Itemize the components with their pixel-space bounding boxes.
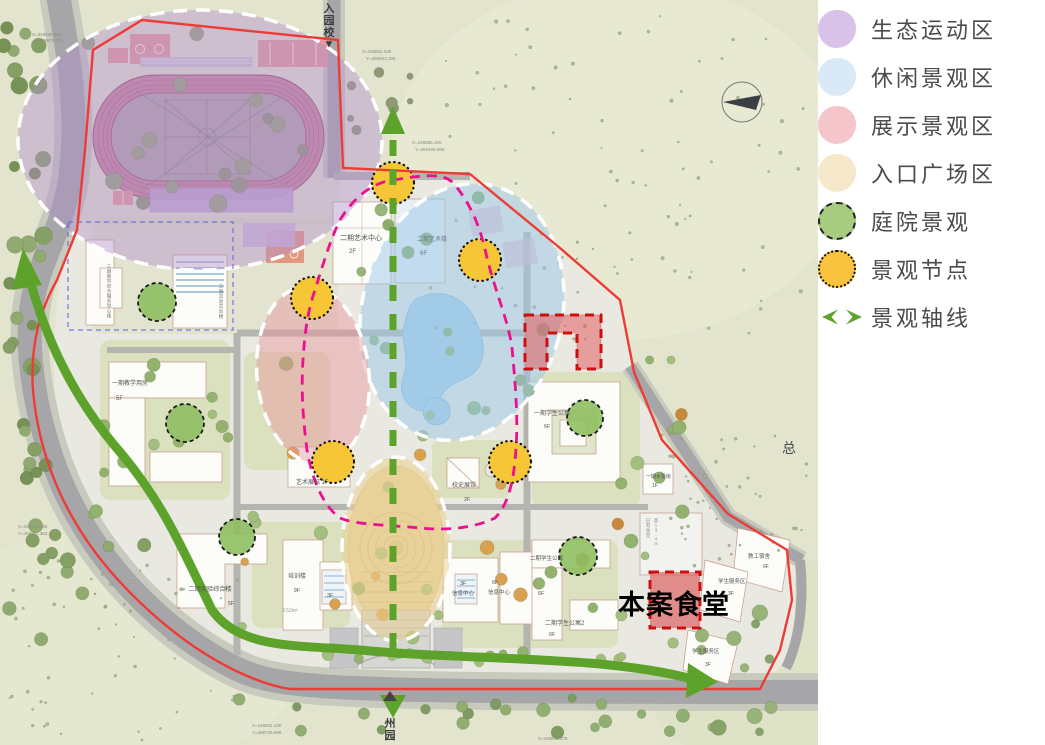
page: 入园校▼州园二期艺术中心2F二期艺术楼6F一期教学用房5F三期教学综合服务中心楼… (0, 0, 1045, 745)
tree (9, 161, 20, 172)
tree (167, 578, 170, 581)
tree (514, 588, 528, 602)
tree (684, 218, 686, 220)
tree (146, 564, 149, 567)
tree (797, 167, 800, 170)
tree (711, 720, 727, 736)
tree (7, 63, 23, 79)
tree (32, 708, 34, 710)
tree (137, 538, 151, 552)
legend-swatch-4 (818, 154, 856, 192)
tree (216, 420, 228, 432)
tree (667, 215, 670, 218)
tree (357, 267, 366, 276)
tree (748, 332, 750, 334)
tree (601, 147, 603, 149)
tree (31, 584, 33, 586)
map-label: Y=468463.186 (366, 56, 396, 61)
tree (734, 437, 737, 440)
tree (592, 248, 594, 250)
tree (34, 250, 46, 262)
map-label: 培训楼 (288, 572, 306, 580)
tree (22, 607, 24, 609)
map-label: X=348871.180 (18, 524, 48, 529)
tree (690, 498, 692, 500)
legend-label: 景观轴线 (871, 301, 971, 333)
tree (27, 320, 37, 330)
map-label: 已有食堂 (646, 518, 651, 538)
tree (588, 603, 598, 613)
tree (295, 725, 306, 736)
map-label: 3.52m² (282, 608, 298, 614)
tree (314, 526, 327, 539)
tree (233, 695, 235, 697)
tree (148, 439, 159, 450)
tree (703, 475, 706, 478)
tree (755, 728, 763, 736)
tree (668, 638, 679, 649)
tree (1, 22, 14, 35)
tree (615, 478, 627, 490)
map-label: 信息中心 (452, 589, 475, 597)
tree (537, 703, 551, 717)
tree (407, 73, 413, 79)
legend-item-4: 入口广场区 (818, 154, 1043, 192)
tree (493, 88, 495, 90)
tree (687, 525, 690, 528)
tree (758, 144, 760, 146)
tree (90, 578, 92, 580)
tree (14, 617, 17, 620)
tree (37, 553, 49, 565)
tree (629, 232, 632, 235)
tree (747, 477, 750, 480)
tree (515, 182, 517, 184)
tree (90, 505, 103, 518)
tree (386, 97, 398, 109)
tree (40, 700, 43, 703)
tree (676, 709, 689, 722)
tree (207, 392, 218, 403)
tree (220, 597, 222, 599)
map-label: 三期教学综合服务中心楼 (107, 264, 112, 320)
tree (632, 181, 635, 184)
tree (609, 170, 612, 173)
tree (223, 433, 233, 443)
tree (673, 420, 687, 434)
map-label: 2F (464, 497, 471, 503)
tree (545, 566, 557, 578)
legend-label: 展示景观区 (871, 109, 996, 141)
tree (91, 693, 93, 695)
tree (99, 567, 101, 569)
tree (736, 96, 739, 99)
map-label: 3F (327, 593, 334, 599)
tree (63, 606, 65, 608)
tree (779, 151, 782, 154)
tree (590, 723, 599, 732)
tree (805, 475, 807, 477)
tree (726, 485, 728, 487)
tree (46, 723, 49, 726)
map-label: 6F (420, 251, 427, 257)
tree (507, 20, 510, 23)
tree (641, 552, 649, 560)
tree (514, 150, 516, 152)
tree (682, 168, 684, 170)
tree (751, 620, 760, 629)
tree (103, 541, 114, 552)
legend-swatch-5 (818, 202, 856, 240)
tree (449, 135, 452, 138)
map-label: 6F (538, 591, 545, 597)
map-label: 总 (782, 440, 796, 456)
tree (618, 31, 621, 34)
tree (138, 731, 140, 733)
tree (631, 258, 633, 260)
map-label: 信息中心 (488, 588, 511, 596)
map-label: 一期教学用房 (112, 379, 148, 387)
tree (768, 170, 770, 172)
tree (801, 529, 803, 531)
tree (799, 555, 801, 557)
tree (674, 270, 677, 273)
tree (762, 103, 764, 105)
tree (616, 272, 618, 274)
map-label: 艺术展馆 1F (296, 478, 329, 486)
tree (147, 615, 149, 617)
tree (39, 571, 42, 574)
tree (720, 439, 722, 441)
tree (614, 266, 616, 268)
tree (515, 54, 517, 56)
tree (697, 176, 700, 179)
tree (707, 327, 710, 330)
map-label: 6F (763, 564, 769, 570)
tree (760, 530, 762, 532)
tree (721, 57, 723, 59)
axis-arrows-icon (818, 298, 867, 336)
tree (698, 60, 700, 62)
legend-swatch-2 (818, 58, 856, 96)
legend-swatch-6 (818, 250, 856, 288)
tree (407, 98, 413, 104)
map-label: 二期实验综合楼 (188, 585, 231, 593)
tree (141, 739, 143, 741)
tree (770, 533, 773, 536)
map-label: 二期艺术中心 (340, 233, 382, 242)
tree (799, 290, 802, 293)
tree (780, 119, 784, 123)
tree (494, 20, 497, 23)
tree (727, 631, 742, 646)
tree (210, 690, 212, 692)
tree (743, 269, 746, 272)
map-label: 5F (228, 601, 235, 607)
tree (118, 655, 120, 657)
tree (552, 132, 554, 134)
tree (19, 425, 30, 436)
tree (576, 241, 579, 244)
tree (740, 663, 749, 672)
tree (123, 603, 125, 605)
tree (680, 90, 682, 92)
map-label: 6F (544, 424, 551, 430)
tree (178, 607, 180, 609)
map-label: X=348835.343 (32, 32, 62, 37)
tree (728, 544, 731, 547)
tree (129, 610, 131, 612)
tree (680, 526, 683, 529)
tree (661, 434, 663, 436)
tree (174, 592, 177, 595)
tree (60, 733, 62, 735)
tree (679, 204, 681, 206)
tree (529, 46, 532, 49)
tree (354, 654, 363, 663)
tree (476, 71, 479, 74)
tree (133, 636, 135, 638)
map-label: 1F (652, 483, 658, 489)
tree (414, 449, 426, 461)
tree (98, 628, 100, 630)
tree (445, 60, 447, 62)
tree (732, 38, 735, 41)
tree (101, 573, 104, 576)
legend-item-6: 景观节点 (818, 250, 1043, 288)
tree (753, 446, 755, 448)
map-label: Y=468857.363 (18, 531, 48, 536)
tree (684, 538, 686, 540)
tree (659, 15, 661, 17)
tree (616, 179, 619, 182)
tree (670, 99, 673, 102)
tree (114, 674, 117, 677)
map-label: X=348834.035 (362, 49, 392, 54)
tree (576, 258, 578, 260)
map-label: 入园校▼ (324, 2, 336, 51)
site-plan-map: 入园校▼州园二期艺术中心2F二期艺术楼6F一期教学用房5F三期教学综合服务中心楼… (0, 0, 818, 745)
tree (675, 505, 689, 519)
tree (716, 518, 718, 520)
tree (571, 62, 574, 65)
tree (667, 356, 675, 364)
tree (236, 579, 238, 581)
tree (759, 495, 761, 497)
tree (176, 711, 178, 713)
tree (11, 77, 28, 94)
tree (675, 408, 687, 420)
tree (375, 204, 388, 217)
tree (647, 30, 650, 33)
tree (675, 222, 678, 225)
tree (599, 715, 612, 728)
tree (739, 544, 741, 546)
tree (20, 28, 31, 39)
tree (601, 119, 604, 122)
map-label: 6F (549, 632, 556, 638)
tree (718, 557, 721, 560)
tree (637, 710, 646, 719)
map-label: 3F (460, 581, 467, 587)
tree (330, 599, 341, 610)
tree (612, 518, 624, 530)
tree (134, 665, 137, 668)
map-label: 学生服务区 (718, 577, 746, 585)
tree (23, 457, 36, 470)
tree (702, 500, 704, 502)
tree (661, 257, 664, 260)
legend-item-3: 展示景观区 (818, 106, 1043, 144)
map-label: X=348841.430 (252, 723, 282, 728)
tree (241, 558, 249, 566)
tree (168, 639, 170, 641)
tree (688, 276, 691, 279)
tree (159, 727, 161, 729)
map-label: 9F (294, 588, 301, 594)
tree (697, 501, 700, 504)
tree (624, 534, 638, 548)
tree (504, 85, 507, 88)
tree (174, 658, 176, 660)
map-label: 本案食堂 (618, 589, 730, 620)
tree (669, 455, 672, 458)
map-label: 2F (349, 249, 356, 255)
tree (755, 493, 757, 495)
tree (3, 341, 16, 354)
tree (130, 580, 133, 583)
tree (12, 589, 15, 592)
tree (695, 629, 708, 642)
map-label: 二期学生公寓 (530, 554, 564, 562)
tree (596, 699, 606, 709)
tree (685, 476, 687, 478)
tree (9, 697, 11, 699)
tree (664, 726, 675, 737)
tree (774, 435, 776, 437)
tree (34, 633, 47, 646)
tree (760, 300, 762, 302)
tree (49, 529, 61, 541)
tree (641, 150, 643, 152)
tree (669, 517, 672, 520)
tree (45, 702, 47, 704)
tree (687, 480, 689, 482)
map-label: Y=466405.566 (415, 147, 445, 152)
tree (47, 676, 50, 679)
tree (248, 511, 259, 522)
tree (147, 358, 160, 371)
tree (805, 463, 808, 466)
tree (677, 141, 679, 143)
map-label: 教工宿舍 (748, 552, 771, 560)
map-label: 6F (492, 580, 499, 586)
map-label: 三期实验实训楼 (219, 284, 224, 320)
map-label: 二期学生公寓2 (545, 619, 585, 627)
tree (752, 605, 768, 621)
tree (457, 701, 468, 712)
legend-item-5: 庭院景观 (818, 202, 1043, 240)
tree (292, 703, 301, 712)
map-label: X=348885.450 (412, 140, 442, 145)
tree (577, 291, 579, 293)
legend-label: 景观节点 (871, 253, 971, 285)
tree (47, 576, 50, 579)
tree (57, 560, 60, 563)
tree (802, 107, 804, 109)
tree (490, 699, 501, 710)
tree (115, 624, 117, 626)
tree (691, 271, 693, 273)
tree (110, 583, 113, 586)
map-label: 学生服务区 (692, 647, 720, 655)
tree (374, 67, 384, 77)
tree (765, 701, 777, 713)
tree (31, 724, 34, 727)
legend-item-1: 生态运动区 (818, 10, 1043, 48)
tree (11, 695, 14, 698)
tree (480, 541, 494, 555)
map-label: 3F (705, 662, 711, 668)
tree (233, 694, 245, 706)
training-building (283, 540, 323, 630)
tree (792, 527, 795, 530)
tree (680, 437, 682, 439)
legend-swatch-3 (818, 106, 856, 144)
tree (573, 338, 576, 341)
legend: 生态运动区休闲景观区展示景观区入口广场区庭院景观景观节点景观轴线 (818, 10, 1043, 346)
tree (569, 98, 571, 100)
tree (180, 588, 183, 591)
tree (730, 553, 732, 555)
map-label: Y=468725.689 (252, 730, 282, 735)
legend-label: 休闲景观区 (871, 61, 996, 93)
tree (526, 28, 529, 31)
tree (765, 38, 767, 40)
tree (94, 593, 96, 595)
map-label: 5F (116, 396, 123, 402)
tree (53, 603, 56, 606)
tree (681, 533, 683, 535)
map-label: X=348836.275 (538, 736, 568, 741)
tree (445, 103, 449, 107)
tree (532, 87, 535, 90)
tree (208, 410, 217, 419)
tree (631, 456, 644, 469)
legend-item-2: 休闲景观区 (818, 58, 1043, 96)
map-label: 州园 (384, 717, 396, 742)
tree (645, 184, 647, 186)
tree (421, 704, 431, 714)
tree (26, 690, 29, 693)
map-label: 一期水泵房 (646, 473, 671, 480)
legend-item-7: 景观轴线 (818, 298, 1043, 336)
tree (561, 256, 563, 258)
tree (777, 549, 780, 552)
tree (139, 570, 141, 572)
tree (689, 215, 691, 217)
tree (23, 570, 26, 573)
legend-swatch-1 (818, 10, 856, 48)
tree (479, 103, 482, 106)
map-label: 一期学生公寓 (534, 409, 570, 417)
tree (183, 588, 185, 590)
tree (500, 705, 511, 716)
tree (714, 460, 717, 463)
tree (28, 645, 30, 647)
tree (645, 356, 653, 364)
tree (693, 564, 696, 567)
